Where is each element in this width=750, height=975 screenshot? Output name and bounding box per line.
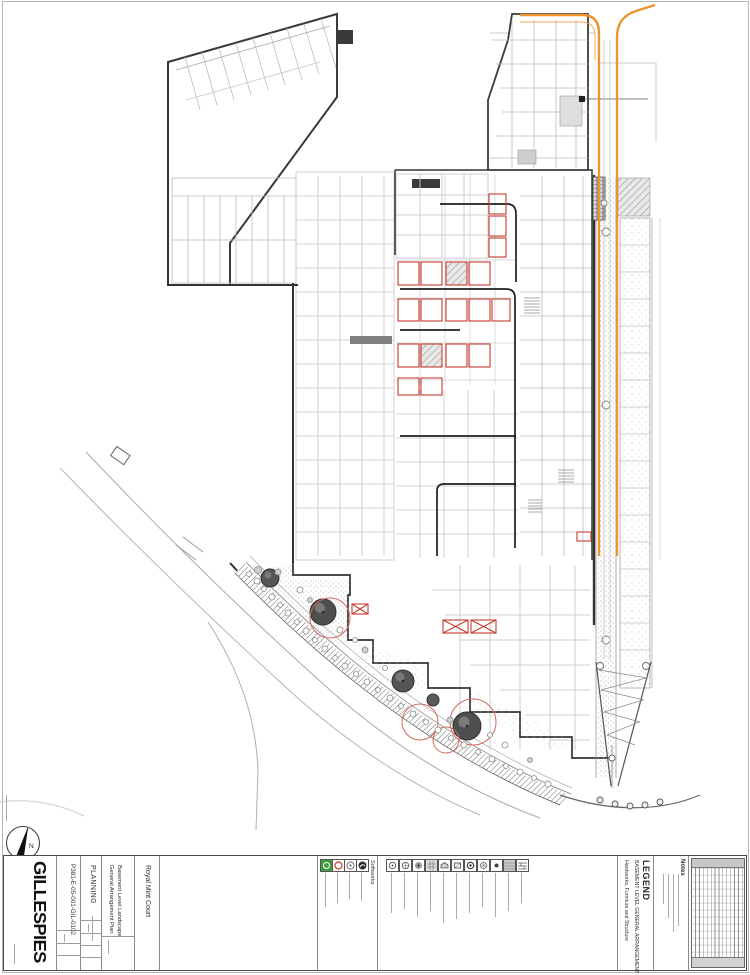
wall-icon [516,859,529,872]
bollard-icon [490,859,503,872]
stair-core [350,336,392,344]
micro-text [108,940,109,954]
project-name: Royal Mint Court [144,865,151,917]
red-cross-bays [352,604,496,633]
north-label-n: N [29,843,34,850]
subcell-line [80,957,101,958]
revision-table [691,858,745,968]
legend-label [443,873,444,923]
revision-table-header [692,859,744,868]
subcell-line [80,933,101,934]
tree-type-4-icon [464,859,477,872]
tree-type-3-icon [412,859,425,872]
subcell-line [80,920,101,921]
northeast-block [488,14,648,170]
drawing-title-line1: Basement Level Landscape [116,865,122,937]
tree-type-1-icon [386,859,399,872]
notes-title: Notes [679,859,685,876]
softworks-section-label: Softworks [368,860,374,885]
mid-center-rooms [396,390,518,558]
micro-text [92,916,93,941]
east-walkway-strip [593,175,651,788]
legend-label [391,873,392,913]
hardworks-section-label: Hardworks, Furniture and Structure [623,860,628,941]
edge-micro-text [6,795,7,821]
legend-label [521,873,522,903]
legend-subtitle: BASEMENT LEVEL GENERAL ARRANGEMENT [633,860,638,973]
subcell-line [56,955,80,956]
paving-type-1-icon [425,859,438,872]
divider [317,856,318,970]
divider [56,856,57,970]
central-left-block [296,172,394,560]
subcell-line [56,943,80,944]
divider [653,856,654,970]
legend-label [417,873,418,917]
divider [377,856,378,970]
legend-label [456,873,457,919]
tree-grille-icon [477,859,490,872]
dark-core [412,179,440,188]
micro-text [88,924,89,932]
paving-type-2-icon [503,859,516,872]
legend-label [508,873,509,911]
divider [688,856,689,970]
title-block: GILLESPIES P381-E-05-001-GIL-0102 PLANNI… [3,855,747,971]
furniture-icon [451,859,464,872]
firm-logo: GILLESPIES [29,861,48,963]
drawing-sheet: N GILLESPIES P381-E-05-001-GIL-0102 PLAN… [0,0,750,975]
micro-text [64,934,65,942]
legend-label [430,873,431,911]
shelter-icon [438,859,451,872]
legend-label [349,873,350,899]
existing-tree-icon [356,859,369,872]
legend-label [482,873,483,907]
tree-type-2-icon [399,859,412,872]
note-line [668,874,669,918]
legend-label [469,873,470,913]
road-structure [111,446,130,464]
divider [159,856,160,970]
status-planning: PLANNING [89,865,96,904]
divider [134,856,135,970]
note-line [673,874,674,932]
southwest-landscape [230,556,572,805]
site-plan-svg [0,0,750,855]
legend-label [337,873,338,903]
legend-title: LEGEND [641,860,650,901]
divider [101,856,102,970]
legend-label [495,873,496,917]
drawing-title-line2: General Arrangement Plan [108,865,114,934]
revision-table-footer [692,957,744,967]
logo-micro-text [14,944,15,964]
legend-label [404,873,405,909]
legend-label [325,873,326,907]
note-line [678,874,679,926]
survey-marker [579,96,585,102]
note-line [663,874,664,904]
bottom-kerb [560,795,700,809]
top-center-rooms [396,174,488,258]
subcell-line [80,945,101,946]
drawing-number: P381-E-05-001-GIL-0102 [68,864,75,935]
divider [617,856,618,970]
planting-band [620,218,650,688]
divider [80,856,81,970]
legend-label [361,873,362,901]
central-right-rooms [520,176,592,556]
southwest-roads [0,446,540,830]
